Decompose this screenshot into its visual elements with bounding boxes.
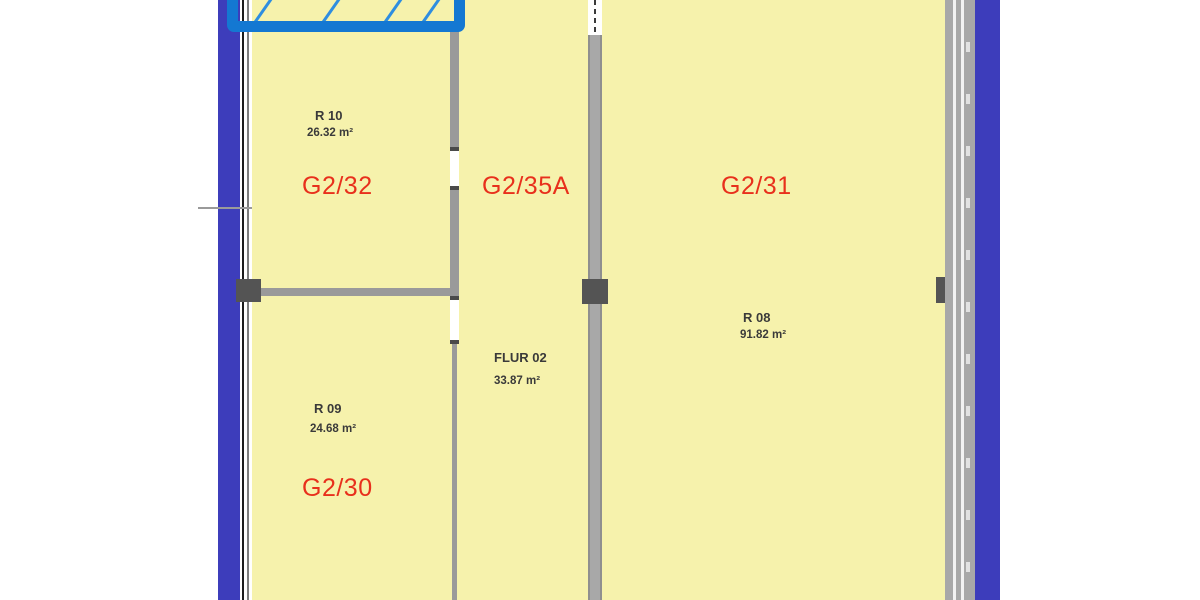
right-wall-ticks [966, 0, 970, 600]
room-region-g2-31[interactable] [602, 0, 945, 600]
door-dash-line [594, 0, 596, 35]
door-opening-r09 [450, 296, 459, 344]
interior-wall-vertical-top [450, 30, 459, 147]
room-area-label: 33.87 m² [494, 376, 540, 388]
room-number-label: R 10 [315, 109, 342, 122]
interior-wall-vertical-bottom [452, 344, 457, 600]
left-wall-tick [198, 207, 254, 209]
room-code-label: G2/32 [302, 174, 373, 199]
door-opening-r10 [450, 147, 459, 190]
door-jamb [450, 296, 459, 300]
right-wall-stripe [961, 0, 964, 600]
wall-connector-left [236, 279, 261, 302]
room-area-label: 24.68 m² [310, 424, 356, 436]
corridor-region-g2-35a[interactable] [459, 0, 588, 600]
room-region-g2-30[interactable] [252, 296, 450, 600]
room-number-label: FLUR 02 [494, 351, 547, 364]
interior-wall-vertical-mid [450, 190, 459, 290]
room-code-label: G2/30 [302, 476, 373, 501]
selection-highlight[interactable] [227, 0, 465, 32]
right-exterior-band [975, 0, 1000, 600]
interior-wall-horizontal [252, 288, 459, 296]
floorplan-canvas: R 10 26.32 m² G2/32 R 09 24.68 m² G2/30 … [0, 0, 1200, 600]
wall-connector-middle [582, 279, 608, 304]
room-number-label: R 08 [743, 311, 770, 324]
right-wall-stripe [953, 0, 956, 600]
door-jamb [450, 147, 459, 151]
room-area-label: 26.32 m² [307, 128, 353, 140]
room-code-label: G2/31 [721, 174, 792, 199]
right-wall [945, 0, 975, 600]
room-number-label: R 09 [314, 402, 341, 415]
room-code-label: G2/35A [482, 174, 570, 199]
room-area-label: 91.82 m² [740, 330, 786, 342]
corridor-wall [588, 35, 602, 600]
room-region-g2-32[interactable] [252, 33, 450, 288]
